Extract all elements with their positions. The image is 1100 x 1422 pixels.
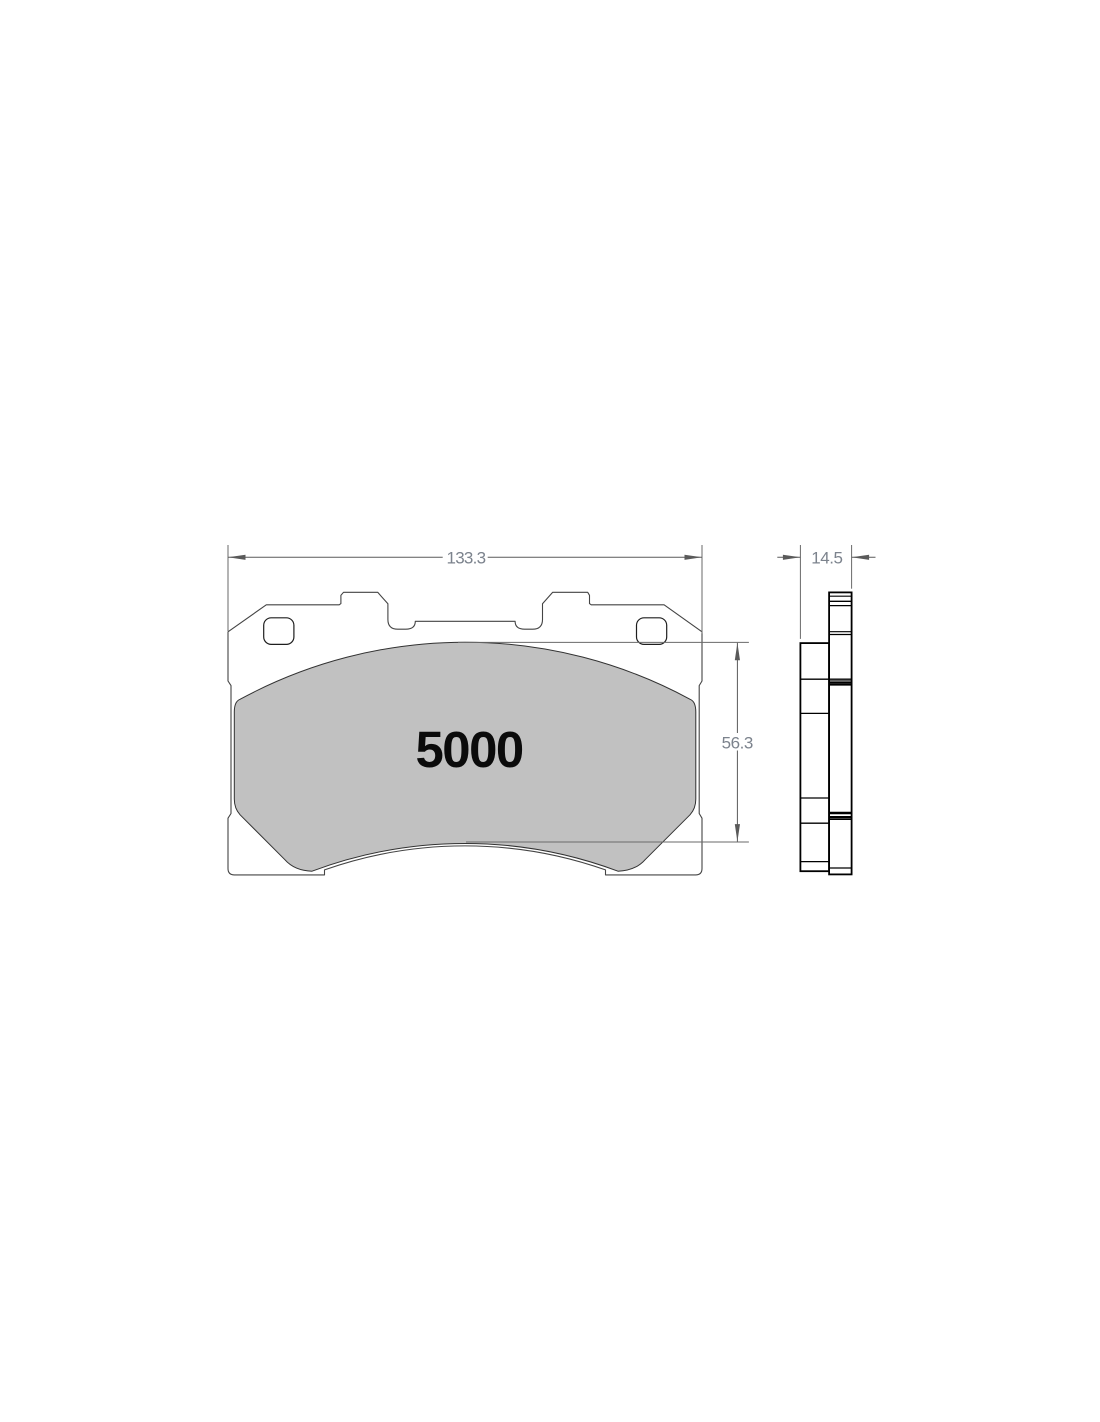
svg-text:56.3: 56.3 bbox=[722, 733, 753, 752]
svg-text:133.3: 133.3 bbox=[447, 548, 486, 567]
svg-text:14.5: 14.5 bbox=[811, 548, 842, 567]
svg-text:5000: 5000 bbox=[415, 721, 522, 778]
